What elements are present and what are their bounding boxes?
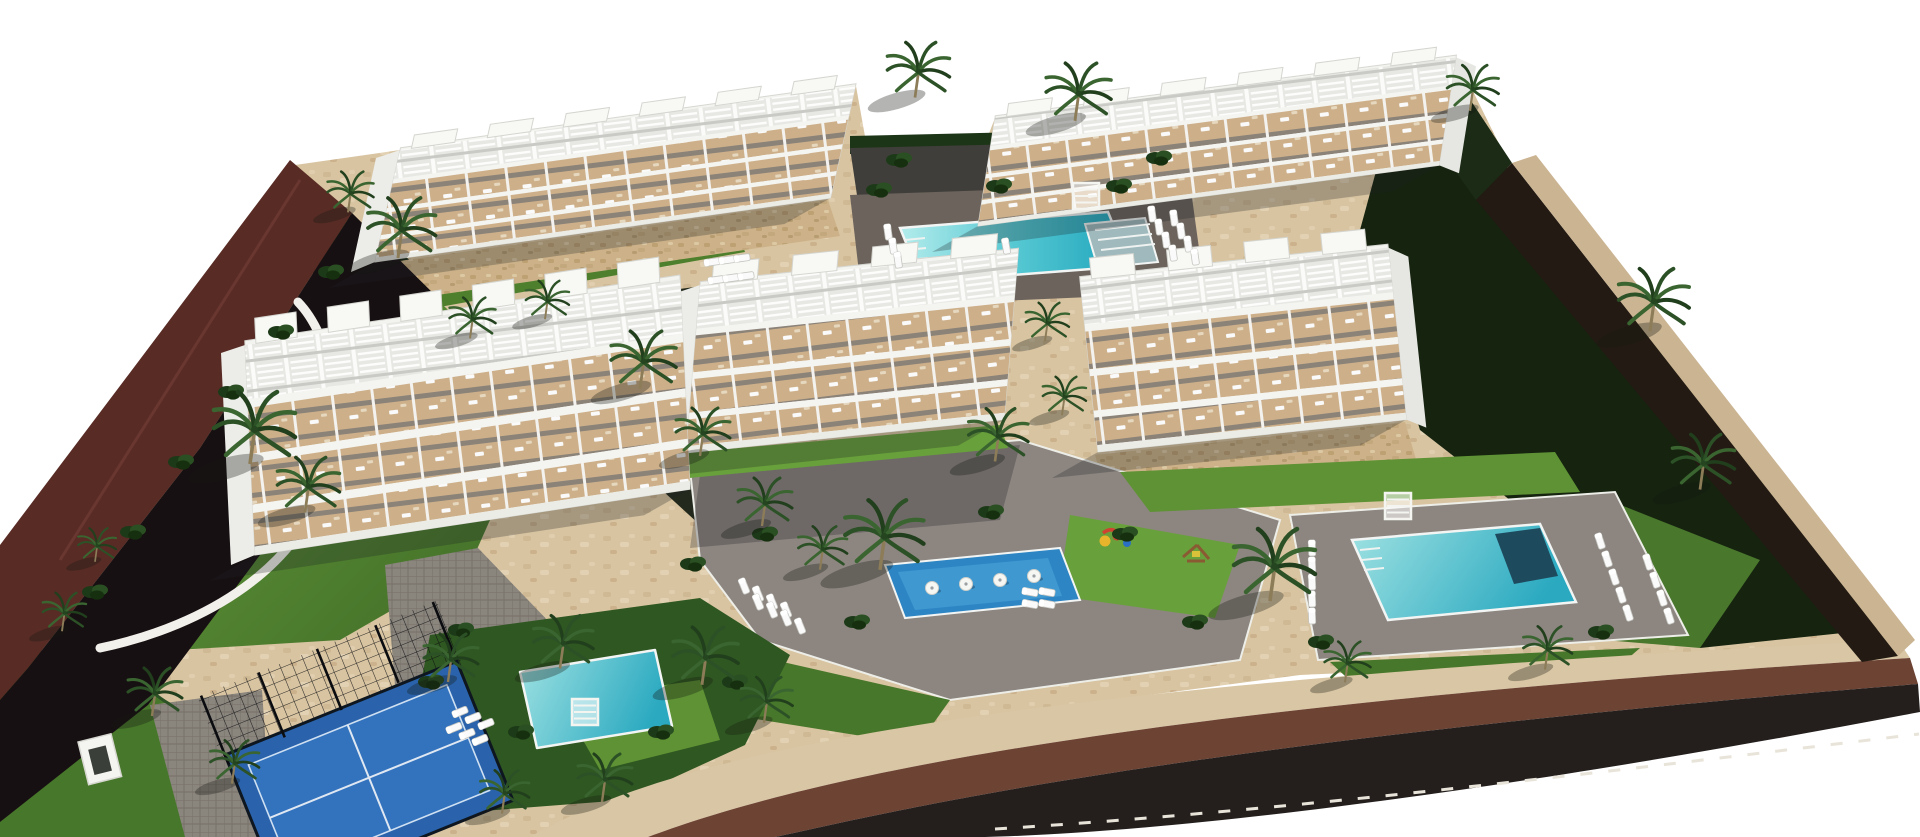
- sun-pergola: [1073, 183, 1099, 209]
- lounger-cluster: [1308, 540, 1316, 624]
- aerial-render: [0, 0, 1920, 837]
- block-center-roof-pergola: [951, 234, 998, 259]
- block-right-roof-pergola: [1244, 237, 1290, 262]
- right-pool: [1352, 524, 1576, 620]
- aerial-render-stage: [0, 0, 1920, 837]
- sun-pergola: [572, 699, 598, 725]
- block-right-roof-pergola: [1321, 229, 1367, 254]
- block-right-roof-pergola: [1089, 254, 1135, 279]
- sun-lounger: [1308, 574, 1316, 590]
- sun-pergola: [1385, 493, 1411, 519]
- block-center-roof-pergola: [792, 251, 839, 276]
- sun-lounger: [1308, 608, 1316, 624]
